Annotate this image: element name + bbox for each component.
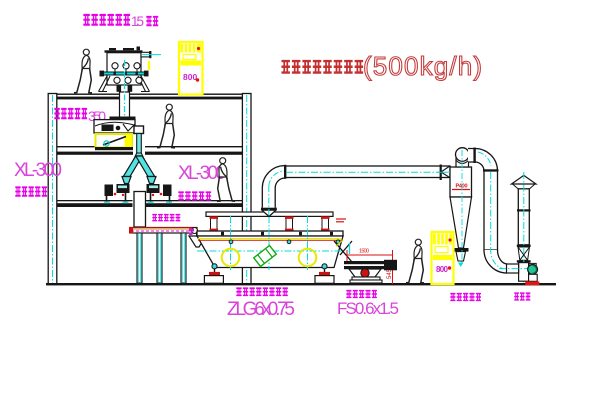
svg-text:ZLG6x0.75: ZLG6x0.75 [227,299,295,320]
svg-text:(500kg/h): (500kg/h) [363,51,482,81]
svg-text:800: 800 [183,72,197,82]
svg-text:800: 800 [436,265,449,274]
svg-text:XL-300: XL-300 [14,160,62,181]
svg-text:FS0.6x1.5: FS0.6x1.5 [337,299,399,318]
svg-text:1.5: 1.5 [131,14,144,29]
svg-text:P400: P400 [456,184,468,190]
svg-text:1500: 1500 [359,249,369,255]
